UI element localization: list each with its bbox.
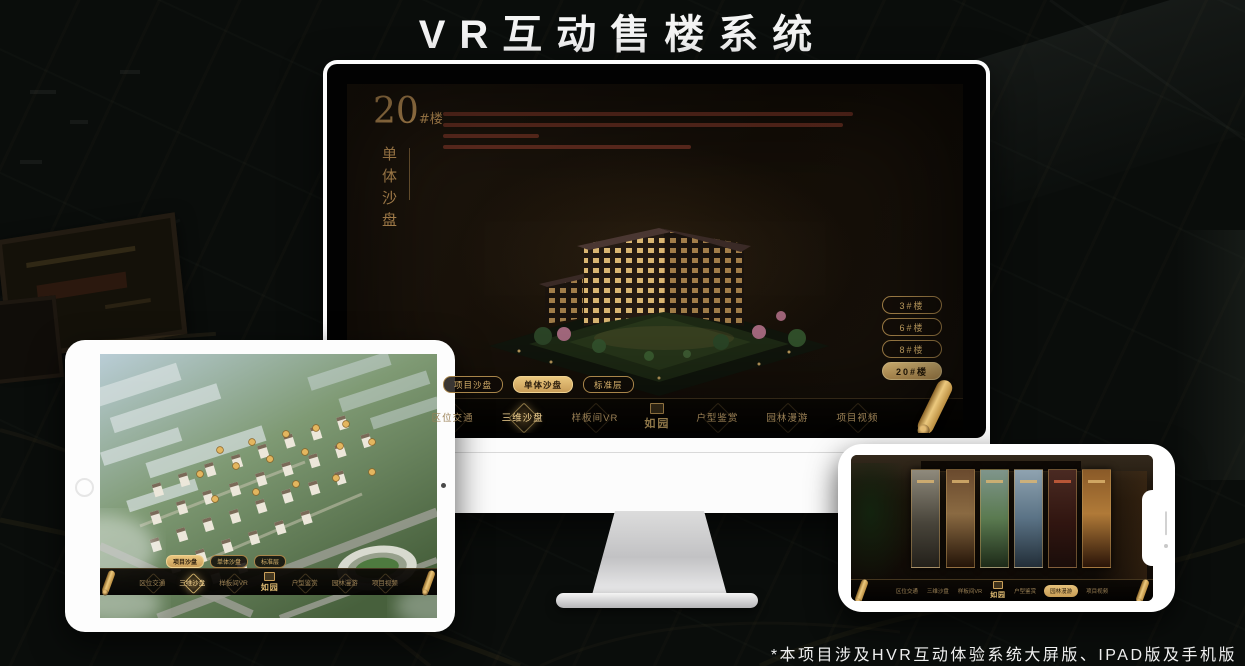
phone-screen: 区位交通 三维沙盘 样板间VR 如园 户型鉴赏 园林漫游 项目视频: [851, 455, 1153, 601]
section-number: 20: [373, 91, 419, 132]
scene-panel-terrace[interactable]: [946, 469, 975, 568]
nav-item-sandtable[interactable]: 三维沙盘: [178, 575, 206, 589]
nav-item-project-video[interactable]: 项目视频: [1085, 586, 1109, 596]
camera-icon: [1164, 544, 1168, 548]
scene-panel-building[interactable]: [1014, 469, 1043, 568]
ipad-screen: 项目沙盘 单体沙盘 标准层 区位交通 三维沙盘 样板间VR 如园 户型鉴赏 园林…: [100, 354, 437, 618]
seal-logo-icon: [650, 403, 664, 414]
scene-panel-seal[interactable]: [1048, 469, 1077, 568]
phone-device: 区位交通 三维沙盘 样板间VR 如园 户型鉴赏 园林漫游 项目视频: [838, 444, 1175, 612]
floor-button[interactable]: 3#楼: [882, 296, 942, 314]
view-pill[interactable]: 单体沙盘: [210, 555, 248, 568]
nav-item-garden-roam[interactable]: 园林漫游: [764, 407, 810, 427]
nav-item-location[interactable]: 区位交通: [895, 586, 919, 596]
seal-logo-icon: [993, 581, 1003, 589]
section-divider: [409, 148, 410, 200]
nav-item-showroom-vr[interactable]: 样板间VR: [570, 407, 621, 427]
scroll-menu-icon[interactable]: [1135, 578, 1150, 601]
intro-paragraph: [443, 112, 853, 156]
floor-button-active[interactable]: 20#楼: [882, 362, 942, 380]
camera-icon: [441, 483, 446, 488]
floor-button[interactable]: 6#楼: [882, 318, 942, 336]
floor-button[interactable]: 8#楼: [882, 340, 942, 358]
bottom-navbar: 区位交通 三维沙盘 样板间VR 如园 户型鉴赏 园林漫游 项目视频: [851, 579, 1153, 601]
brand-logo[interactable]: 如园: [990, 581, 1006, 600]
section-title: 20#楼: [373, 94, 443, 130]
view-pill[interactable]: 标准层: [254, 555, 286, 568]
speaker-slot: [1165, 511, 1167, 535]
seal-logo-icon: [264, 572, 275, 581]
scroll-menu-icon[interactable]: [421, 570, 436, 595]
view-pill-active[interactable]: 项目沙盘: [166, 555, 204, 568]
page-title: VR互动售楼系统: [0, 2, 1245, 60]
nav-item-showroom-vr[interactable]: 样板间VR: [218, 575, 249, 589]
brand-logo-text: 如园: [644, 415, 670, 431]
phone-notch: [1142, 490, 1157, 566]
nav-item-project-video[interactable]: 项目视频: [371, 575, 399, 589]
view-pill-group: 项目沙盘 单体沙盘 标准层: [443, 376, 634, 393]
award-plaque-secondary: [0, 295, 64, 386]
footnote: *本项目涉及HVR互动体验系统大屏版、IPAD版及手机版: [771, 641, 1237, 665]
plant-silhouette: [851, 463, 915, 587]
ipad-device: 项目沙盘 单体沙盘 标准层 区位交通 三维沙盘 样板间VR 如园 户型鉴赏 园林…: [65, 340, 455, 632]
nav-item-sandtable[interactable]: 三维沙盘: [500, 407, 546, 427]
background-photo: [1175, 230, 1245, 480]
brand-logo[interactable]: 如园: [644, 403, 670, 431]
brand-logo[interactable]: 如园: [261, 572, 279, 593]
building-sandtable-canvas[interactable]: [459, 166, 859, 396]
view-pill-group: 项目沙盘 单体沙盘 标准层: [166, 555, 286, 568]
view-pill-active[interactable]: 单体沙盘: [513, 376, 573, 393]
home-button[interactable]: [75, 478, 94, 497]
scene-panel-shelf[interactable]: [1082, 469, 1111, 568]
brand-logo-text: 如园: [261, 582, 279, 593]
nav-item-garden-roam[interactable]: 园林漫游: [331, 575, 359, 589]
nav-item-project-video[interactable]: 项目视频: [834, 407, 880, 427]
section-subtitle: 单体沙盘: [379, 146, 400, 234]
nav-item-garden-roam[interactable]: 园林漫游: [1044, 585, 1078, 597]
view-pill[interactable]: 项目沙盘: [443, 376, 503, 393]
view-pill[interactable]: 标准层: [583, 376, 634, 393]
scroll-menu-icon[interactable]: [854, 578, 869, 601]
nav-item-showroom-vr[interactable]: 样板间VR: [957, 586, 983, 596]
scene-panel-courtyard[interactable]: [911, 469, 940, 568]
scene-panel-garden[interactable]: [980, 469, 1009, 568]
nav-item-floorplans[interactable]: 户型鉴赏: [291, 575, 319, 589]
nav-item-location[interactable]: 区位交通: [138, 575, 166, 589]
monitor-base: [556, 593, 758, 608]
bottom-navbar: 区位交通 三维沙盘 样板间VR 如园 户型鉴赏 园林漫游 项目视频: [100, 568, 437, 595]
nav-item-floorplans[interactable]: 户型鉴赏: [694, 407, 740, 427]
nav-item-sandtable[interactable]: 三维沙盘: [926, 586, 950, 596]
monitor-stand: [592, 511, 727, 595]
scroll-menu-icon[interactable]: [101, 570, 116, 595]
brand-logo-text: 如园: [990, 590, 1006, 600]
nav-item-floorplans[interactable]: 户型鉴赏: [1013, 586, 1037, 596]
section-number-suffix: #楼: [419, 112, 443, 127]
stage: VR互动售楼系统 20#楼 单体沙盘: [0, 0, 1245, 666]
